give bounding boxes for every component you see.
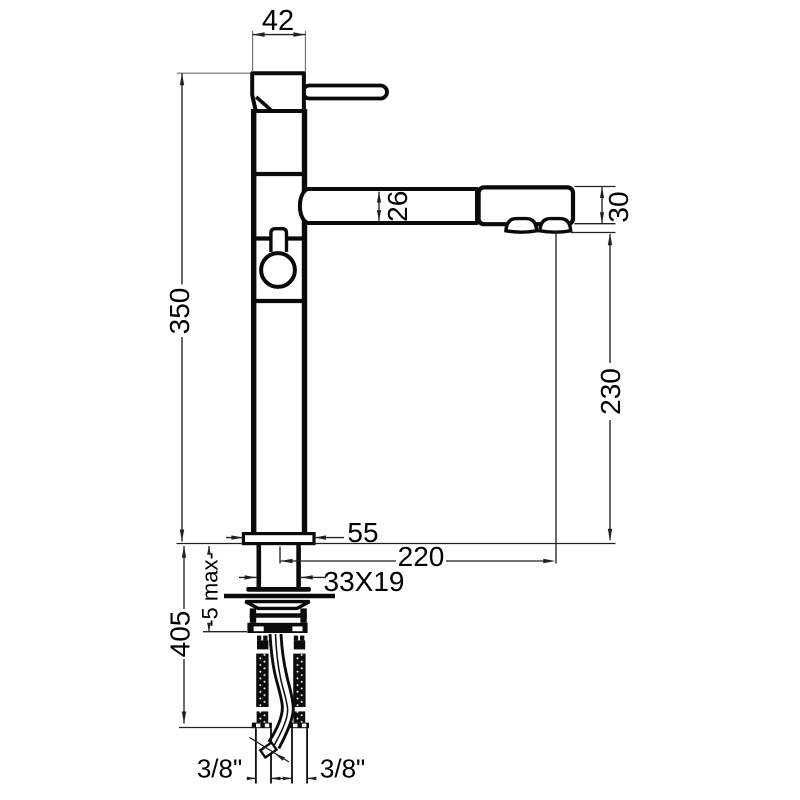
svg-text:350: 350 (164, 288, 195, 335)
svg-text:3/8": 3/8" (197, 754, 242, 784)
svg-text:30: 30 (603, 191, 634, 222)
svg-text:26: 26 (382, 191, 413, 222)
svg-text:55: 55 (347, 517, 378, 548)
svg-text:-5 max-: -5 max- (198, 552, 223, 627)
svg-text:220: 220 (398, 541, 445, 572)
svg-text:405: 405 (165, 611, 196, 658)
svg-text:3/8": 3/8" (320, 754, 365, 784)
svg-text:33X19: 33X19 (324, 566, 405, 597)
svg-text:42: 42 (262, 5, 294, 37)
svg-text:230: 230 (595, 368, 626, 415)
